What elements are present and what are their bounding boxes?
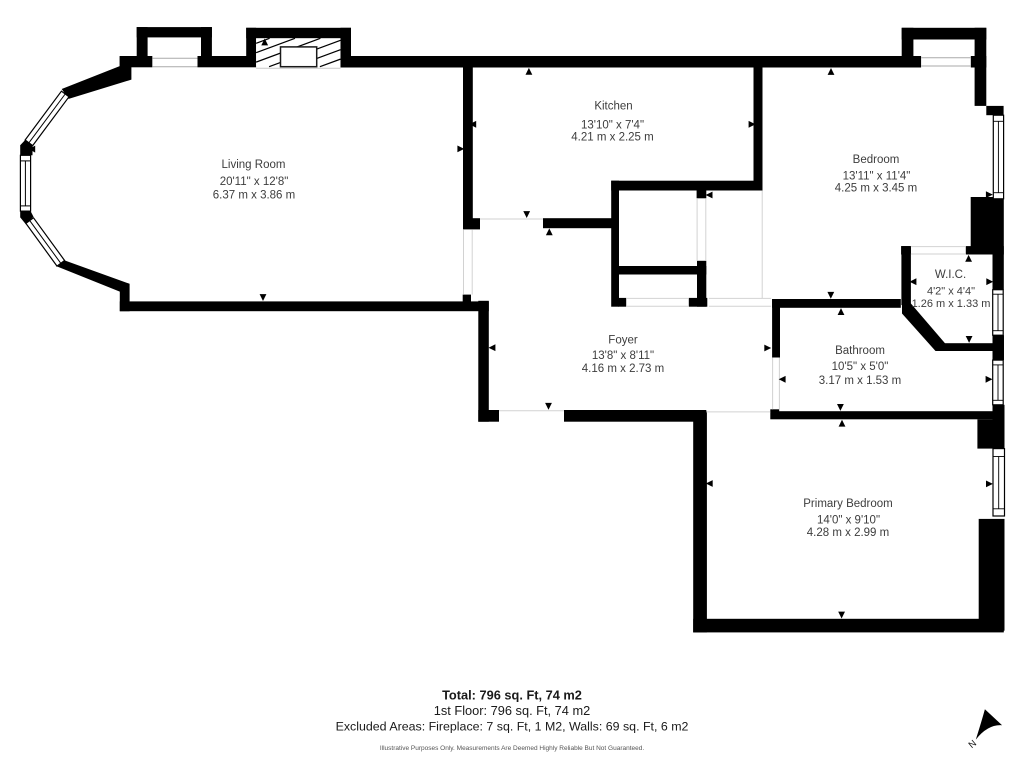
svg-text:1st Floor: 796 sq. Ft, 74 m2: 1st Floor: 796 sq. Ft, 74 m2 [434,703,590,718]
svg-text:13'8" x 8'11": 13'8" x 8'11" [592,350,654,362]
svg-text:Bathroom: Bathroom [835,345,885,357]
svg-text:13'10" x 7'4": 13'10" x 7'4" [581,120,644,132]
svg-text:Total: 796 sq. Ft, 74 m2: Total: 796 sq. Ft, 74 m2 [442,688,582,703]
svg-text:Primary Bedroom: Primary Bedroom [803,498,892,510]
svg-text:Foyer: Foyer [608,335,638,347]
svg-text:4.16 m x 2.73 m: 4.16 m x 2.73 m [582,363,664,375]
svg-text:10'5" x 5'0": 10'5" x 5'0" [832,361,889,373]
svg-text:1.26 m x 1.33 m: 1.26 m x 1.33 m [912,298,991,310]
svg-text:Kitchen: Kitchen [594,101,632,113]
svg-text:4'2" x 4'4": 4'2" x 4'4" [927,286,975,298]
svg-text:4.28 m x 2.99 m: 4.28 m x 2.99 m [807,527,889,539]
svg-text:W.I.C.: W.I.C. [935,269,966,281]
svg-text:Illustrative Purposes Only. Me: Illustrative Purposes Only. Measurements… [380,745,645,752]
svg-text:6.37 m x 3.86 m: 6.37 m x 3.86 m [213,190,295,202]
svg-text:4.25 m x 3.45 m: 4.25 m x 3.45 m [835,183,917,195]
svg-text:Bedroom: Bedroom [853,154,900,166]
svg-text:20'11" x 12'8": 20'11" x 12'8" [220,176,289,188]
svg-text:4.21 m x 2.25 m: 4.21 m x 2.25 m [571,132,653,144]
svg-text:Excluded Areas: Fireplace: 7 s: Excluded Areas: Fireplace: 7 sq. Ft, 1 M… [336,719,689,733]
svg-text:14'0" x 9'10": 14'0" x 9'10" [817,515,880,527]
svg-text:Living Room: Living Room [222,159,286,171]
svg-text:3.17 m x 1.53 m: 3.17 m x 1.53 m [819,375,901,387]
svg-text:13'11" x 11'4": 13'11" x 11'4" [843,171,911,183]
